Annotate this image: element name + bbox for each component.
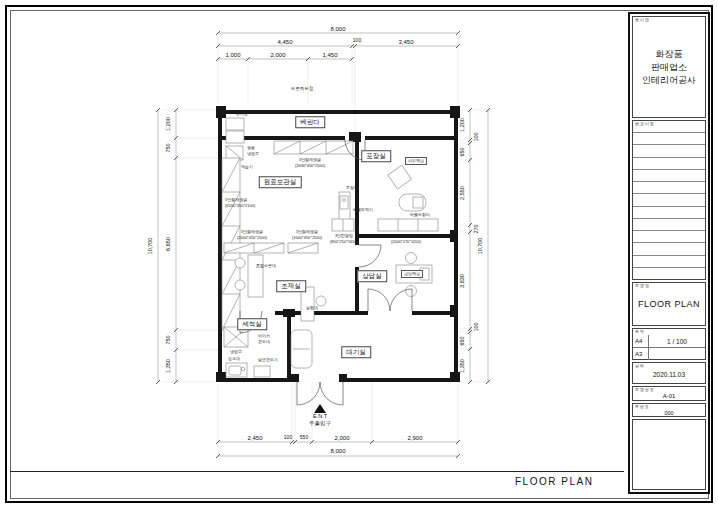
dim-left-1350: 1,350 [166, 359, 172, 373]
dim-bot-2450: 2,450 [247, 435, 262, 441]
display-shelf-2000 [378, 219, 438, 231]
project-name-line1: 화장품 [656, 50, 683, 59]
dim-top-1450: 1,450 [322, 52, 337, 58]
title-block: 공사명 화장품 판매업소 인테리어공사 변경사항 도면명 FLOOR PLAN [628, 12, 710, 494]
label-office-desk: 사무책상 [405, 157, 427, 165]
label-consult-desk: 상담책상 [401, 270, 423, 278]
dim-top-100: 100 [353, 38, 361, 43]
label-labeler: 라벨부착기 [353, 208, 373, 212]
dim-right-100b: 100 [474, 322, 480, 331]
lab-table [301, 287, 314, 321]
revision-row [633, 194, 705, 206]
paper-size-a4: A4 [633, 335, 649, 347]
date-header: 날짜 [635, 364, 645, 368]
revisions-header: 변경사항 [635, 122, 655, 126]
revision-row [633, 158, 705, 170]
revision-row [633, 268, 705, 279]
dim-left-1200: 1,200 [166, 117, 172, 131]
revision-row [633, 170, 705, 182]
label-display-b-name: 3단진열장 [397, 234, 415, 238]
revision-row [633, 145, 705, 157]
dim-right-2550: 2,550 [460, 186, 466, 200]
projected-window-label: 프로젝트창 [291, 86, 314, 91]
dim-bot-100: 100 [284, 435, 292, 440]
chair [235, 280, 245, 290]
entrance-label-main: 주출입구 [309, 421, 331, 427]
title-block-date: 날짜 2020.11.03 [632, 362, 706, 384]
drawing-title-header: 도면명 [635, 284, 650, 288]
drawing-title: FLOOR PLAN [638, 299, 700, 309]
scale-row-a3: A3 [633, 347, 705, 360]
project-header: 공사명 [635, 18, 650, 22]
dim-right-3830: 3,830 [460, 274, 466, 288]
office-chair [388, 165, 412, 189]
label-display-b-size: (2000*270*1200) [391, 240, 421, 244]
dim-left-750b: 750 [166, 335, 172, 344]
entrance-label-ent: E.N.T [313, 414, 327, 420]
label-dehumidifier: 제습기 [241, 165, 253, 169]
entrance-marker [314, 404, 326, 413]
dim-right-total: 10,700 [478, 238, 484, 255]
mixing-table [248, 255, 263, 297]
label-beaker-2: 건조대 [258, 340, 270, 344]
dim-bot-2900: 2,900 [407, 435, 422, 441]
title-block-scale: 축척 A4 1 / 100 A3 [632, 328, 706, 360]
dim-left-6650: 6,650 [166, 237, 172, 251]
label-packing-table: 포장대 [346, 186, 358, 190]
dim-top-total: 8,000 [330, 26, 345, 32]
label-mat-fridge-2: 냉장고 [247, 152, 259, 156]
sterilizer-box [254, 366, 270, 377]
label-lab-table: 실험대 [306, 306, 318, 310]
extension-lines [162, 36, 492, 454]
revision-row [633, 207, 705, 219]
project-name-line2: 판매업소 [651, 63, 687, 72]
scale-value-a4: 1 / 100 [649, 338, 705, 345]
title-block-drawing-number: 도면번호 A-01 [632, 386, 706, 401]
room-label-storage: 원료보관실 [259, 176, 302, 188]
chair [406, 286, 417, 297]
dim-bot-550: 550 [300, 435, 308, 440]
label-fridge: 냉장고 [230, 350, 242, 354]
trash-bin-box [226, 118, 244, 130]
room-label-prep: 조제실 [276, 280, 306, 292]
chair [235, 258, 245, 268]
footer-title: FLOOR PLAN [515, 476, 593, 487]
sheet-header: 쪽번호 [635, 405, 650, 409]
dim-right-1350: 1,350 [460, 359, 466, 373]
dim-right-270: 270 [474, 224, 480, 233]
labeler-box [340, 196, 348, 209]
dim-bot-2000: 2,000 [334, 435, 349, 441]
drawing-number-value: A-01 [633, 393, 705, 399]
label-shelf-d-size: (1000*450*2100) [292, 236, 322, 240]
label-shelf-c-size: (2000*450*2100) [237, 236, 267, 240]
label-mixing-table: 혼합소분대 [256, 264, 276, 268]
scale-header: 축척 [635, 330, 645, 334]
title-block-revisions: 변경사항 [632, 120, 706, 280]
label-display-a-name: 3단진열장 [335, 234, 353, 238]
dim-right-100a: 100 [474, 132, 480, 141]
dim-right-650b: 650 [460, 336, 466, 345]
revision-row [633, 219, 705, 231]
dim-top-3450: 3,450 [398, 39, 413, 45]
revision-row [633, 243, 705, 255]
scale-row-a4: A4 1 / 100 [633, 335, 705, 347]
label-shelf-a-size: (2630*450*2100) [295, 164, 325, 168]
dim-right-1200: 1,200 [460, 118, 466, 132]
revision-row [633, 256, 705, 268]
revision-row [633, 182, 705, 194]
dim-top-4450: 4,450 [277, 39, 292, 45]
dim-left-750a: 750 [166, 143, 172, 152]
dim-bot-total: 8,000 [330, 448, 345, 454]
dim-top-2000: 2,000 [270, 52, 285, 58]
label-shelf-c-name: 5단철재앵글 [241, 230, 263, 234]
title-block-project: 공사명 화장품 판매업소 인테리어공사 [632, 16, 706, 118]
dim-top-1000: 1,000 [225, 52, 240, 58]
footer-strip: FLOOR PLAN [10, 471, 624, 491]
label-shelf-b-name: 5단철재앵글 [225, 198, 247, 202]
room-label-wash: 세척실 [237, 318, 267, 330]
chair [406, 253, 417, 264]
label-mat-fridge-1: 원료 [247, 146, 255, 150]
sheet-value: 000 [633, 410, 705, 416]
revision-row [633, 231, 705, 243]
label-sink: 싱크대 [228, 357, 240, 361]
revision-row [633, 133, 705, 145]
drawing-sheet: 8,000 4,450 100 3,450 1,000 2,000 1,450 … [0, 0, 718, 508]
label-beaker-1: 비이커 [258, 334, 270, 338]
drawing-number-header: 도면번호 [635, 388, 655, 392]
title-block-empty [632, 419, 706, 490]
dim-left-total: 10,700 [148, 238, 154, 255]
date-value: 2020.11.03 [633, 371, 705, 378]
dim-right-650a: 650 [460, 147, 466, 156]
label-display-a-size: (800*250*1650) [330, 240, 358, 244]
title-block-sheet: 쪽번호 000 [632, 403, 706, 417]
label-sterilizer: 살균건조기 [258, 358, 278, 362]
label-trash: 휴지통 [236, 112, 248, 116]
room-label-consult: 상담실 [357, 270, 387, 282]
room-label-packing: 포장실 [361, 150, 391, 162]
label-label-printer: 라벨프린터 [410, 213, 430, 217]
label-shelf-a-name: 5단철재앵글 [299, 158, 321, 162]
room-label-veranda: 베란다 [295, 116, 325, 128]
room-label-wait: 대기실 [341, 346, 371, 358]
label-shelf-d-name: 5단철재앵글 [296, 230, 318, 234]
label-shelf-b-size: (6550*450*2100) [225, 204, 255, 208]
floor-plan-drawing [0, 0, 718, 508]
title-block-drawing-title: 도면명 FLOOR PLAN [632, 282, 706, 326]
dimension-lines [158, 33, 488, 456]
trash-bin-box2 [226, 131, 244, 143]
paper-size-a3: A3 [633, 348, 649, 360]
project-name-line3: 인테리어공사 [642, 76, 696, 85]
